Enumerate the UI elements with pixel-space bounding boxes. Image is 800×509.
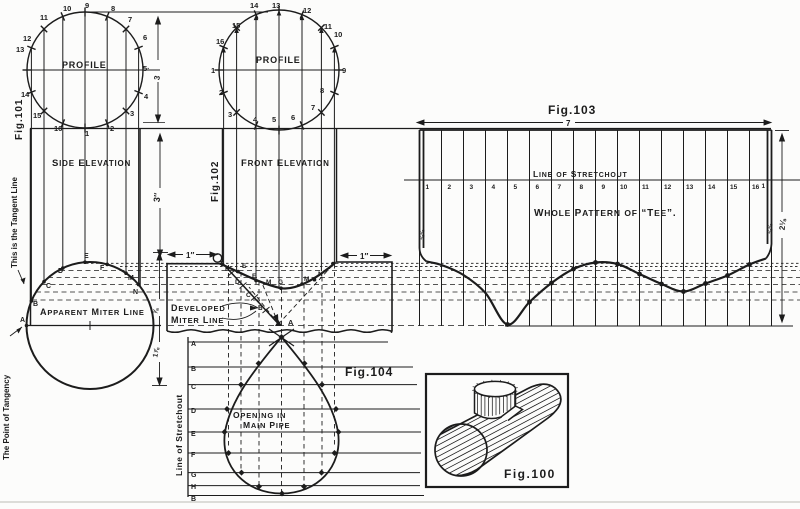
svg-text:2: 2 bbox=[219, 88, 223, 97]
svg-text:MAIN PIPE: MAIN PIPE bbox=[243, 420, 290, 430]
svg-text:13: 13 bbox=[686, 184, 694, 191]
svg-text:Fig.100: Fig.100 bbox=[504, 467, 556, 481]
svg-text:8: 8 bbox=[320, 86, 324, 95]
svg-text:PROFILE: PROFILE bbox=[256, 55, 301, 65]
svg-text:⅛⅛: ⅛⅛ bbox=[420, 229, 426, 240]
svg-text:1: 1 bbox=[85, 129, 89, 138]
svg-text:14: 14 bbox=[21, 90, 30, 99]
svg-text:FRONT ELEVATION: FRONT ELEVATION bbox=[241, 158, 330, 169]
svg-text:F: F bbox=[100, 265, 105, 272]
svg-text:A: A bbox=[191, 341, 196, 348]
svg-text:3″: 3″ bbox=[152, 192, 163, 203]
svg-text:11: 11 bbox=[642, 184, 649, 191]
svg-text:3: 3 bbox=[470, 184, 474, 191]
svg-text:3: 3 bbox=[152, 74, 162, 80]
svg-text:2: 2 bbox=[448, 184, 452, 191]
svg-text:6: 6 bbox=[291, 113, 295, 122]
svg-text:N: N bbox=[133, 289, 138, 296]
svg-text:G: G bbox=[278, 279, 283, 286]
svg-text:DEVELOPED: DEVELOPED bbox=[171, 303, 226, 313]
svg-text:5·: 5· bbox=[143, 64, 150, 73]
svg-text:F: F bbox=[191, 452, 196, 459]
svg-text:9: 9 bbox=[85, 1, 89, 10]
svg-text:12: 12 bbox=[23, 34, 31, 43]
svg-text:⅛⅛: ⅛⅛ bbox=[768, 223, 774, 234]
svg-text:B: B bbox=[33, 301, 38, 308]
svg-text:4: 4 bbox=[492, 184, 496, 191]
svg-text:MITER LINE: MITER LINE bbox=[171, 315, 224, 325]
svg-text:10: 10 bbox=[620, 184, 628, 191]
svg-text:WHOLE PATTERN OF “TEE”.: WHOLE PATTERN OF “TEE”. bbox=[534, 208, 676, 219]
svg-text:7: 7 bbox=[558, 184, 562, 191]
svg-text:E: E bbox=[191, 431, 196, 438]
svg-text:3: 3 bbox=[228, 110, 232, 119]
svg-text:M: M bbox=[304, 276, 309, 283]
svg-text:E: E bbox=[84, 253, 89, 260]
svg-text:5: 5 bbox=[272, 115, 276, 124]
svg-text:C: C bbox=[191, 384, 196, 391]
svg-text:15: 15 bbox=[33, 111, 41, 120]
svg-text:12: 12 bbox=[303, 6, 311, 15]
svg-text:11: 11 bbox=[324, 22, 332, 31]
svg-text:OPENING IN: OPENING IN bbox=[233, 410, 286, 420]
svg-text:1″: 1″ bbox=[360, 252, 368, 261]
svg-text:A: A bbox=[20, 317, 25, 324]
svg-text:This is the Tangent Line: This is the Tangent Line bbox=[10, 176, 19, 268]
svg-text:Line of Stretchout: Line of Stretchout bbox=[174, 394, 184, 476]
svg-text:11: 11 bbox=[40, 13, 48, 22]
svg-text:16: 16 bbox=[752, 184, 760, 191]
svg-text:The Point of Tangency: The Point of Tangency bbox=[2, 374, 11, 460]
svg-text:Fig.104: Fig.104 bbox=[345, 365, 393, 379]
svg-text:B: B bbox=[191, 366, 196, 373]
svg-text:6: 6 bbox=[143, 33, 147, 42]
svg-text:4: 4 bbox=[144, 92, 149, 101]
svg-text:8: 8 bbox=[580, 184, 584, 191]
svg-text:D: D bbox=[58, 268, 63, 275]
svg-text:LINE OF STRETCHOUT: LINE OF STRETCHOUT bbox=[533, 169, 628, 179]
svg-text:9: 9 bbox=[342, 66, 346, 75]
svg-text:16: 16 bbox=[216, 37, 224, 46]
svg-text:14: 14 bbox=[708, 184, 716, 191]
svg-text:D: D bbox=[235, 279, 240, 286]
svg-text:SIDE ELEVATION: SIDE ELEVATION bbox=[52, 158, 131, 169]
svg-text:15: 15 bbox=[730, 184, 738, 191]
svg-text:12: 12 bbox=[664, 184, 672, 191]
svg-text:PROFILE: PROFILE bbox=[62, 60, 107, 70]
svg-text:2⅛: 2⅛ bbox=[778, 217, 788, 230]
svg-text:13: 13 bbox=[272, 1, 280, 10]
svg-text:7: 7 bbox=[311, 103, 315, 112]
svg-text:13: 13 bbox=[16, 45, 24, 54]
svg-text:5: 5 bbox=[514, 184, 518, 191]
svg-text:1: 1 bbox=[426, 184, 430, 191]
svg-text:F: F bbox=[252, 273, 256, 280]
svg-text:E: E bbox=[225, 266, 230, 273]
svg-text:6: 6 bbox=[536, 184, 540, 191]
svg-text:Fig.102: Fig.102 bbox=[210, 161, 221, 202]
svg-text:C: C bbox=[46, 283, 51, 290]
svg-text:10: 10 bbox=[63, 4, 71, 13]
svg-text:1⅞: 1⅞ bbox=[152, 346, 161, 358]
svg-text:10: 10 bbox=[334, 30, 342, 39]
svg-text:Fig.103: Fig.103 bbox=[548, 103, 596, 117]
svg-text:M: M bbox=[266, 279, 271, 286]
svg-text:D: D bbox=[191, 408, 196, 415]
svg-text:1: 1 bbox=[762, 183, 766, 190]
svg-text:3: 3 bbox=[130, 109, 134, 118]
svg-text:APPARENT MITER LINE: APPARENT MITER LINE bbox=[40, 307, 145, 317]
svg-text:9: 9 bbox=[602, 184, 606, 191]
svg-text:7: 7 bbox=[128, 15, 132, 24]
svg-text:1: 1 bbox=[211, 66, 215, 75]
svg-text:Fig.101: Fig.101 bbox=[14, 99, 25, 140]
svg-text:C: C bbox=[246, 292, 251, 299]
svg-text:H: H bbox=[191, 484, 196, 491]
svg-text:G: G bbox=[191, 472, 197, 479]
svg-text:7: 7 bbox=[566, 119, 571, 128]
svg-text:14: 14 bbox=[250, 1, 259, 10]
svg-text:M: M bbox=[128, 275, 134, 282]
svg-text:1″: 1″ bbox=[186, 251, 194, 260]
svg-text:⅞: ⅞ bbox=[152, 307, 160, 315]
